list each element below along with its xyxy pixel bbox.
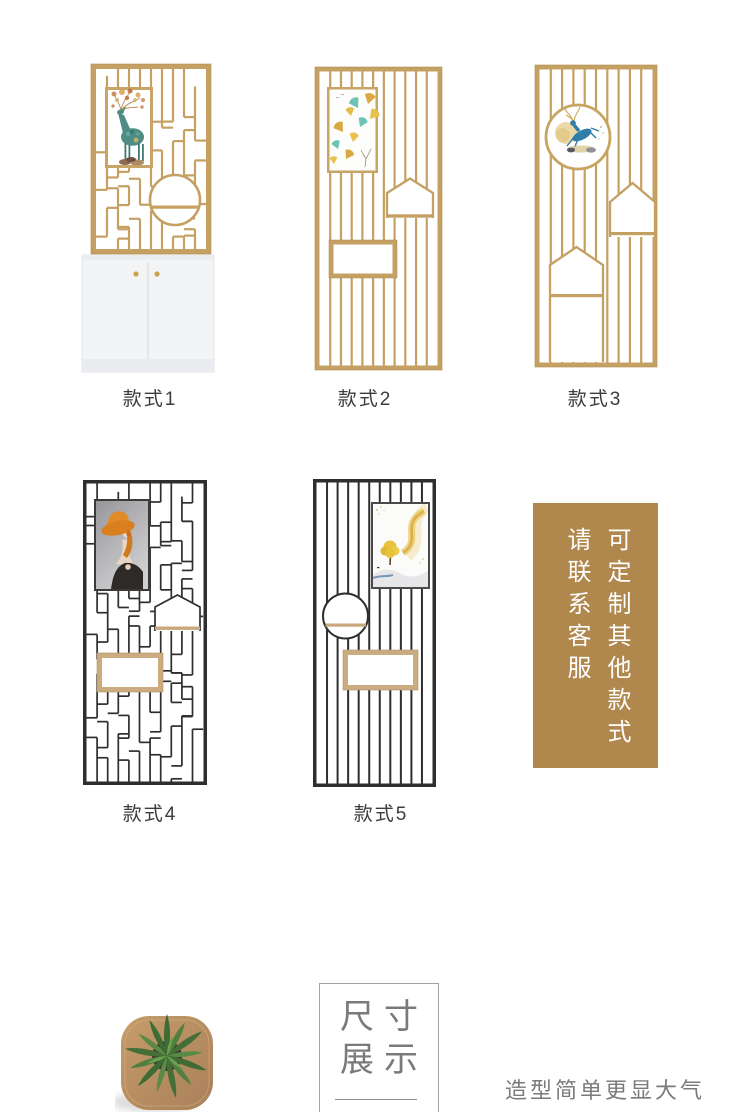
- house-shelf-left: [550, 247, 603, 362]
- style-5-label: 款式5: [316, 799, 446, 826]
- circle-shelf: [323, 594, 368, 639]
- circle-shelf: [150, 175, 200, 225]
- style-4-label: 款式4: [85, 799, 215, 826]
- style-5-screen-image: [311, 477, 441, 789]
- size-display-header: 尺寸 展示: [319, 983, 439, 1112]
- style-4-screen-image: [81, 478, 209, 788]
- shoe-cabinet: [82, 255, 214, 372]
- notice-text-contact: 请联系客服: [559, 527, 594, 687]
- notice-text-customize: 可定制其他款式: [599, 527, 634, 751]
- plant-image: [115, 1008, 220, 1112]
- rect-frame-shelf: [329, 240, 397, 278]
- style-3-screen-image: [533, 63, 661, 369]
- slogan-text: 造型简单更显大气: [505, 1073, 705, 1105]
- style-2-screen-image: [313, 64, 445, 374]
- product-detail-section: 款式1 款式2 款式3 款式4 款式5 可定制其他款式 请联系客服: [0, 0, 750, 1112]
- size-title-row1: 尺寸: [320, 996, 438, 1039]
- style-1-screen-image: [80, 62, 216, 374]
- round-deer-artwork: [546, 105, 610, 169]
- abstract-gold-artwork: [371, 502, 430, 589]
- ginkgo-artwork: [327, 87, 381, 173]
- style-3-label: 款式3: [530, 384, 660, 411]
- wood-rect-frame: [97, 653, 163, 692]
- customization-notice: 可定制其他款式 请联系客服: [533, 503, 658, 768]
- deer-artwork: [105, 87, 153, 168]
- style-2-label: 款式2: [300, 384, 430, 411]
- style-1-label: 款式1: [85, 384, 215, 411]
- wood-rect-frame: [343, 650, 418, 690]
- size-title-row2: 展示: [320, 1039, 438, 1082]
- lady-portrait-artwork: [94, 499, 150, 591]
- size-title-underline: [335, 1099, 417, 1100]
